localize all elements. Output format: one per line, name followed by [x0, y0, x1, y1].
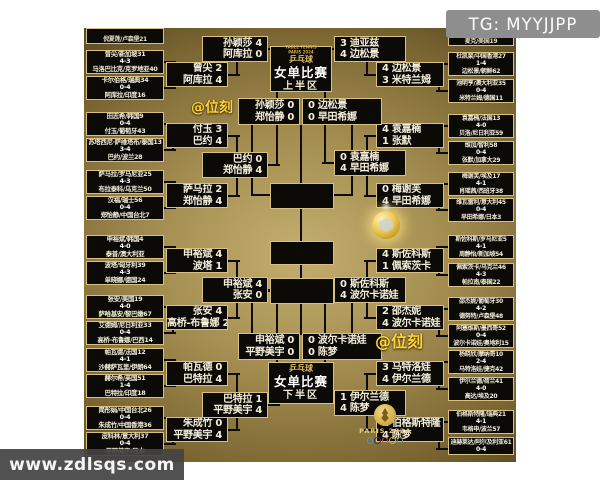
player-name: 韦格申/波兰57: [449, 426, 513, 433]
match-score: 4-2: [449, 305, 513, 312]
match-box-round64: 申裕斌/韩国44-0泰普/澳大利亚: [86, 235, 164, 259]
match-box-round64: 张安/美国194-0萨哈基安/黎巴嫩67: [86, 295, 164, 319]
bracket-line: [268, 404, 280, 406]
weike-watermark-top: @位刻: [191, 97, 233, 117]
match-box-round16: 3 迪亚兹4 边松景: [334, 36, 406, 62]
player-score-line: 申裕斌 4: [203, 279, 262, 291]
match-score: 0-4: [449, 149, 513, 156]
player-name: 付玉/葡萄牙43: [87, 128, 163, 135]
paris-2024-wordmark: PARIS 2024: [354, 427, 416, 435]
match-box-round32: 4 斯佐科斯1 佩索茨卡: [376, 248, 444, 273]
player-name: 波尔卡诺娃/奥地利15: [449, 340, 513, 347]
match-score: 1-4: [449, 60, 513, 67]
player-name: 单晓娜/德国24: [87, 277, 163, 284]
match-box-round32: 萨马拉 2郑怡静 4: [166, 183, 228, 208]
match-box-round16: 巴约 0郑怡静 4: [202, 152, 268, 178]
telegram-watermark: TG: MYYJJPP: [446, 10, 600, 38]
player-score-line: 帕瓦德 0: [167, 362, 222, 374]
player-score-line: 1 伊尔兰德: [340, 392, 405, 404]
player-name: 高桥-布鲁娜/巴西14: [87, 337, 163, 344]
player-name: 布拉泰科/乌克兰50: [87, 186, 163, 193]
match-box-quarterfinal: 0 边松景0 早田希娜: [302, 98, 382, 125]
player-score-line: 孙颖莎 0: [239, 100, 294, 112]
match-box-round32: 付玉 3巴约 4: [166, 123, 228, 148]
player-score-line: 4 波尔卡诺娃: [340, 290, 405, 302]
player-score-line: 1 佩索茨卡: [382, 261, 443, 273]
match-box-round32: 曾尖 2阿库拉 4: [166, 62, 228, 87]
event-title-bottom: 女单比赛: [269, 374, 333, 389]
match-box-round64: 苏塔西尼·萨维塔布/泰国133-4巴约/波兰28: [86, 138, 164, 162]
match-box-round64: 萨马拉/罗马尼亚254-3布拉泰科/乌克兰50: [86, 170, 164, 194]
player-name: 高达/埃及20: [449, 393, 513, 400]
bracket-line: [228, 373, 240, 375]
player-name: 袁嘉楠/法国13: [449, 115, 513, 122]
player-name: 维瓦雷利/意大利45: [449, 199, 513, 206]
player-score-line: 郑怡静 0: [239, 112, 294, 124]
player-score-line: 平野美宇 4: [203, 405, 262, 417]
match-box-round64: 田志希/韩国90-4付玉/葡萄牙43: [86, 112, 164, 136]
match-box-round64: 邵杰妮/葡萄牙304-2德努特/卢森堡48: [448, 297, 514, 321]
player-score-line: 0 斯佐科斯: [340, 279, 405, 291]
bracket-line: [164, 149, 176, 151]
semifinal-slot-bottom: [270, 278, 334, 304]
player-name: 伊尔兰德/荷兰41: [449, 378, 513, 385]
bracket-line: [228, 74, 240, 76]
games-label-line2: PARIS 2024: [281, 51, 321, 54]
player-score-line: 2 邵杰妮: [382, 306, 443, 318]
player-name: 伯格斯特隆/瑞典21: [449, 411, 513, 418]
match-box-round64: 帕瓦德/法国124-1沙赫萨瓦里/伊朗64: [86, 348, 164, 372]
weike-watermark-bottom: @位刻: [375, 328, 423, 352]
match-score: 0-4: [449, 332, 513, 339]
match-box-round16: 申裕斌 4张安 0: [202, 277, 268, 303]
match-box-round64: 伊尔兰德/荷兰414-0高达/埃及20: [448, 377, 514, 401]
upper-half-title-card: TABLE TENNIS PARIS 2024 乒乓球 女单比赛 上半区: [270, 46, 332, 92]
player-score-line: 巴约 4: [167, 136, 222, 148]
lower-half-label: 下半区: [269, 389, 333, 402]
match-score: 4-0: [449, 122, 513, 129]
player-score-line: 郑怡静 4: [167, 196, 222, 208]
match-box-round64: 斯佐科斯/罗马尼亚54-1周静怡/新加坡54: [448, 235, 514, 259]
player-name: 杨晓欣/摩纳哥10: [449, 351, 513, 358]
match-box-round32: 2 邵杰妮4 波尔卡诺娃: [376, 305, 444, 330]
player-score-line: 0 陈梦: [308, 347, 381, 359]
match-box-quarterfinal: 申裕斌 0平野美宇 0: [238, 333, 300, 360]
player-score-line: 巴特拉 1: [203, 394, 262, 406]
match-box-round16: 孙颖莎 4阿库拉 0: [202, 36, 268, 62]
event-title: 女单比赛: [271, 65, 331, 80]
bracket-line: [300, 265, 302, 279]
player-score-line: 平野美宇 4: [167, 430, 222, 442]
olympic-rings-icon: [367, 437, 403, 444]
player-score-line: 4 袁嘉楠: [382, 124, 443, 136]
match-box-round64: 伯格斯特隆/瑞典214-1韦格申/波兰57: [448, 410, 514, 434]
player-score-line: 3 米特兰姆: [382, 75, 443, 87]
match-box-round64: 维瓦雷利/意大利450-4早田希娜/日本3: [448, 198, 514, 222]
match-score: 4-0: [449, 385, 513, 392]
bracket-line: [228, 135, 240, 137]
upper-half-label: 上半区: [271, 80, 331, 93]
match-score: 0-4: [449, 206, 513, 213]
match-box-round64: 波塔/匈牙利394-3单晓娜/德国24: [86, 261, 164, 285]
bracket-line: [268, 164, 280, 166]
paris-2024-flame-icon: [374, 404, 396, 426]
bracket-line: [164, 443, 176, 445]
player-score-line: 波塔 1: [167, 261, 222, 273]
player-score-line: 付玉 3: [167, 124, 222, 136]
bracket-line: [300, 125, 302, 185]
site-watermark: www.zdlsqs.com: [0, 449, 184, 480]
match-box-round32: 3 马特洛娃4 伊尔兰德: [376, 361, 444, 386]
player-score-line: 0 早田希娜: [308, 112, 381, 124]
games-label-line1: TABLE TENNIS: [281, 46, 321, 49]
player-score-line: 萨马拉 2: [167, 184, 222, 196]
player-name: 朱成竹/中国香港36: [87, 422, 163, 429]
player-score-line: 孙颖莎 4: [203, 38, 262, 50]
bracket-line: [300, 304, 302, 335]
player-score-line: 0 梅谢芙: [382, 184, 443, 196]
bracket-line: [228, 429, 240, 431]
player-score-line: 朱成竹 0: [167, 418, 222, 430]
player-name: 贝洛/尼日利亚59: [449, 130, 513, 137]
player-name: 郑怡静/中国台北7: [87, 212, 163, 219]
player-score-line: 曾尖 2: [167, 63, 222, 75]
bracket-line: [228, 260, 240, 262]
match-box-round32: 申裕斌 4波塔 1: [166, 248, 228, 273]
player-name: 沙赫萨瓦里/伊朗64: [87, 364, 163, 371]
player-name: 池明亨/澳大利亚35: [449, 80, 513, 87]
sport-label: 乒乓球: [271, 55, 331, 65]
player-score-line: 申裕斌 0: [239, 335, 294, 347]
bracket-line: [228, 195, 240, 197]
player-score-line: 0 波尔卡诺娃: [308, 335, 381, 347]
match-box-round64: 迪赫莱达/阿尔及利亚610-4: [448, 437, 514, 455]
match-box-round64: 维加/智利580-4张默/加拿大29: [448, 141, 514, 165]
bracket-graphic: 倪夏莲/卢森堡21 麦克/美国19 TABLE TENNIS PARIS 202…: [0, 0, 600, 480]
player-score-line: 4 边松景: [340, 49, 405, 61]
player-score-line: 巴特拉 4: [167, 374, 222, 386]
match-box-round32: 4 袁嘉楠1 张默: [376, 123, 444, 148]
bracket-line: [334, 194, 353, 196]
match-box-round16: 0 袁嘉楠4 早田希娜: [334, 150, 406, 176]
match-box-round64: 杨晓欣/摩纳哥102-4马特洛娃/捷克42: [448, 350, 514, 374]
match-score: 0-4: [449, 87, 513, 94]
bracket-line: [300, 209, 302, 242]
player-score-line: 0 袁嘉楠: [340, 152, 405, 164]
player-name: 维加/智利58: [449, 142, 513, 149]
match-box-round64: 池明亨/澳大利亚350-4米特兰姆/德国11: [448, 79, 514, 103]
match-box-round64: 汉福/瑞士560-4郑怡静/中国台北7: [86, 196, 164, 220]
gold-medal-icon: [372, 211, 400, 239]
match-score: 4-1: [449, 418, 513, 425]
bracket-line: [252, 194, 272, 196]
player-score-line: 4 斯佐科斯: [382, 249, 443, 261]
player-name: 邵杰妮/葡萄牙30: [449, 298, 513, 305]
player-score-line: 3 迪亚兹: [340, 38, 405, 50]
bracket-line: [228, 317, 240, 319]
match-box-round32: 4 边松景3 米特兰姆: [376, 62, 444, 87]
player-name: 马特洛娃/捷克42: [449, 366, 513, 373]
player-score-line: 郑怡静 4: [203, 165, 262, 177]
player-name: 巴约/波兰28: [87, 154, 163, 161]
player-score-line: 张安 4: [167, 306, 222, 318]
player-name: 杜凯琹/中国香港27: [449, 53, 513, 60]
player-name: 阿塞维斯/墨西哥52: [449, 325, 513, 332]
sport-label-bottom: 乒乓球: [269, 364, 333, 374]
bracket-stage: 倪夏莲/卢森堡21 麦克/美国19 TABLE TENNIS PARIS 202…: [84, 28, 516, 462]
semifinal-slot-top: [270, 183, 334, 209]
player-name: 早田希娜/日本3: [449, 214, 513, 221]
player-name: 巴特拉/印度18: [87, 390, 163, 397]
player-name: 阿库拉/印度16: [87, 92, 163, 99]
match-box-round64: 曾尖/新加坡314-3马洛巴比克/克罗地亚40: [86, 50, 164, 74]
player-score-line: 巴约 0: [203, 154, 262, 166]
player-name: 帕拉南/泰国22: [449, 279, 513, 286]
match-box-round64: 赫尔希/英国511-4巴特拉/印度18: [86, 374, 164, 398]
player-name: 边松景/朝鲜62: [449, 68, 513, 75]
player-score-line: 3 马特洛娃: [382, 362, 443, 374]
cut-match-box-top-left: 倪夏莲/卢森堡21: [86, 28, 164, 44]
match-score: 4-1: [449, 243, 513, 250]
player-score-line: 0 边松景: [308, 100, 381, 112]
player-name: 佩索茨卡/乌克兰46: [449, 264, 513, 271]
player-name: 张默/加拿大29: [449, 157, 513, 164]
player-score-line: 4 伊尔兰德: [382, 374, 443, 386]
player-name: 泰普/澳大利亚: [87, 251, 163, 258]
match-box-round64: 佩索茨卡/乌克兰464-3帕拉南/泰国22: [448, 263, 514, 287]
player-score-line: 阿库拉 0: [203, 49, 262, 61]
player-score-line: 高桥-布鲁娜 2: [167, 318, 222, 330]
match-box-round32: 帕瓦德 0巴特拉 4: [166, 361, 228, 386]
player-name: 萨哈基安/黎巴嫩67: [87, 311, 163, 318]
match-score: 4-1: [449, 180, 513, 187]
match-box-round16: 0 斯佐科斯4 波尔卡诺娃: [334, 277, 406, 303]
match-box-round64: 艾德姆/尼日利亚330-4高桥-布鲁娜/巴西14: [86, 321, 164, 345]
bracket-line: [164, 332, 176, 334]
player-score-line: 张安 0: [203, 290, 262, 302]
bracket-line: [164, 87, 176, 89]
match-box-round64: 梅谢芙/埃及174-1肖瑶茜/西班牙38: [448, 172, 514, 196]
match-box-round16: 巴特拉 1平野美宇 4: [202, 392, 268, 418]
player-name: 米特兰姆/德国11: [449, 95, 513, 102]
player-name: 迪赫莱达/阿尔及利亚61: [449, 439, 513, 446]
match-box-quarterfinal: 0 波尔卡诺娃0 陈梦: [302, 333, 382, 360]
match-box-round32: 朱成竹 0平野美宇 4: [166, 417, 228, 442]
match-box-round64: 杜凯琹/中国香港271-4边松景/朝鲜62: [448, 52, 514, 76]
player-name: 肖瑶茜/西班牙38: [449, 188, 513, 195]
player-score-line: 1 张默: [382, 136, 443, 148]
player-score-line: 4 早田希娜: [340, 163, 405, 175]
player-score-line: 4 边松景: [382, 63, 443, 75]
match-score: 2-4: [449, 358, 513, 365]
match-box-quarterfinal: 孙颖莎 0郑怡静 0: [238, 98, 300, 125]
match-box-round64: 阿塞维斯/墨西哥520-4波尔卡诺娃/奥地利15: [448, 324, 514, 348]
match-box-round32: 张安 4高桥-布鲁娜 2: [166, 305, 228, 330]
match-box-round64: 卡尔伯格/瑞典340-4阿库拉/印度16: [86, 76, 164, 100]
match-score: 0-4: [449, 446, 513, 453]
player-name: 周静怡/新加坡54: [449, 251, 513, 258]
player-name: 马洛巴比克/克罗地亚40: [87, 66, 163, 73]
player-name: 德努特/卢森堡48: [449, 313, 513, 320]
final-slot: [270, 241, 334, 265]
player-score-line: 平野美宇 0: [239, 347, 294, 359]
match-box-round64: 简彤娟/中国台北260-4朱成竹/中国香港36: [86, 406, 164, 430]
player-name: 斯佐科斯/罗马尼亚5: [449, 236, 513, 243]
match-box-round64: 袁嘉楠/法国134-0贝洛/尼日利亚59: [448, 114, 514, 138]
match-score: 4-3: [449, 271, 513, 278]
player-score-line: 申裕斌 4: [167, 249, 222, 261]
lower-half-title-card: 乒乓球 女单比赛 下半区: [268, 362, 334, 404]
player-name: 梅谢芙/埃及17: [449, 173, 513, 180]
player-score-line: 阿库拉 4: [167, 75, 222, 87]
